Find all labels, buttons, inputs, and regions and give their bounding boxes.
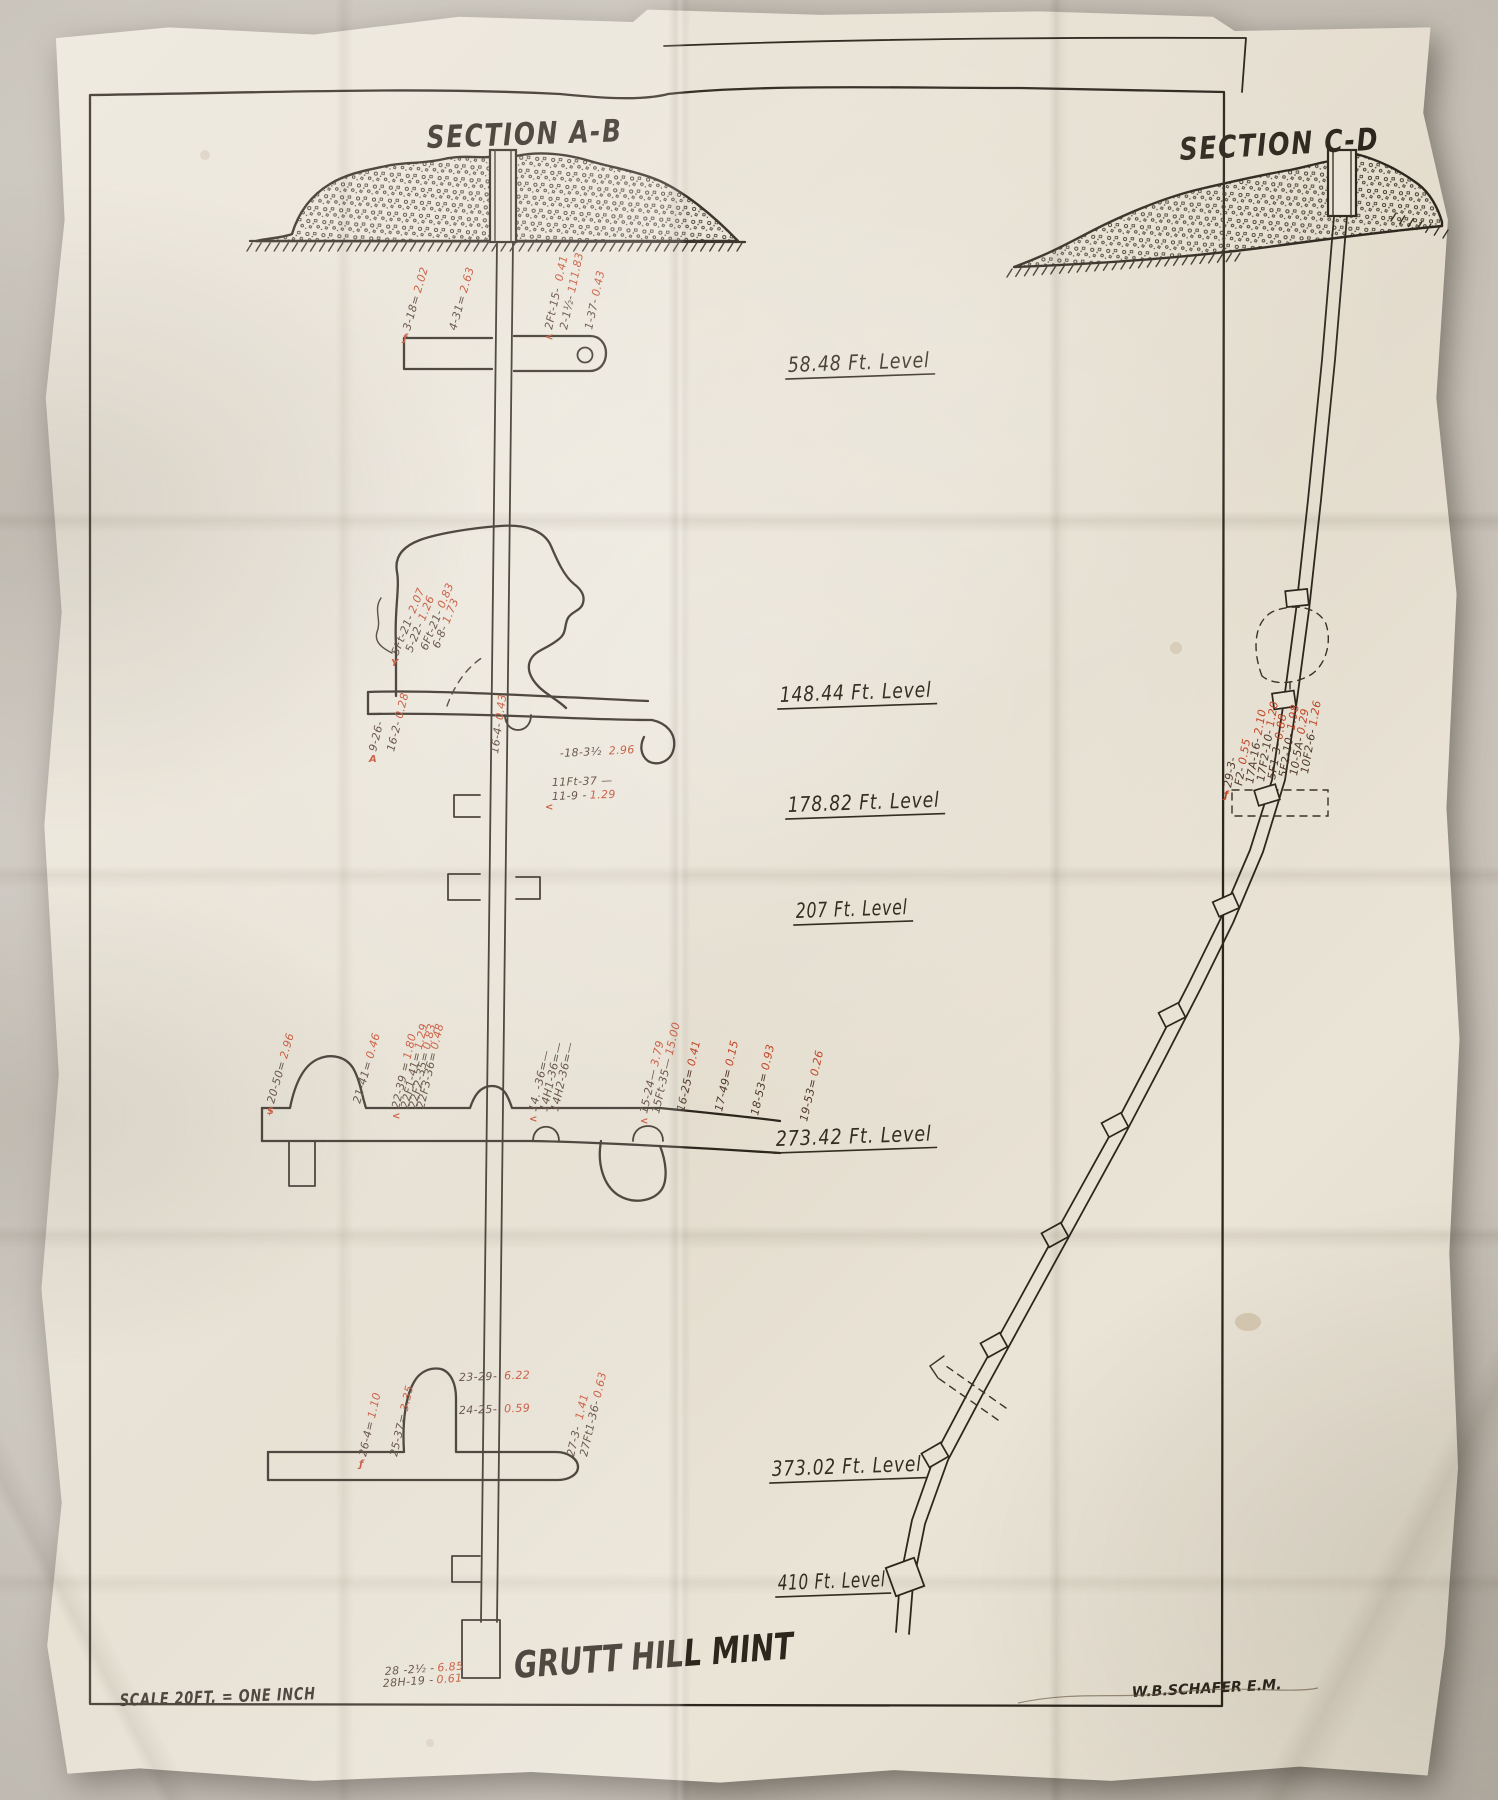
hatch-tick [728, 243, 733, 251]
hatch-tick [592, 243, 597, 251]
border-top-line [664, 38, 1246, 92]
hatch-tick [1235, 253, 1240, 261]
svg-text:-18-3½ 2.96: -18-3½ 2.96 [559, 743, 635, 760]
svg-text:20-50=2.96: 20-50=2.96 [264, 1031, 297, 1104]
border-rect [90, 87, 1224, 1706]
hatch-tick [374, 243, 379, 251]
hatch-tick [1033, 267, 1038, 275]
svg-text:3-18=2.02: 3-18=2.02 [400, 265, 430, 331]
hatch-tick [438, 243, 443, 251]
svg-text:273.42 Ft. Level: 273.42 Ft. Level [775, 1122, 932, 1151]
hatch-tick [556, 243, 561, 251]
assay-annotation: 16-2-0.28 [384, 691, 411, 752]
hatch-tick [474, 243, 479, 251]
assay-annotation: 19-53=0.26 [797, 1049, 826, 1123]
hatch-tick [1051, 266, 1056, 274]
hatch-tick [501, 243, 506, 251]
assay-annotation: 11Ft-37 — [552, 774, 613, 789]
hatch-tick [1007, 269, 1012, 277]
svg-text:17-49=0.15: 17-49=0.15 [712, 1039, 741, 1113]
stope-below-273 [600, 1141, 666, 1201]
winze-273-a [533, 1127, 559, 1141]
winze-58 [578, 348, 593, 363]
svg-text:26-4=1.10: 26-4=1.10 [356, 1391, 383, 1458]
hatch-tick [456, 243, 461, 251]
hatch-tick [646, 243, 651, 251]
drift-373-top [268, 1369, 578, 1480]
svg-text:24-25- 0.59: 24-25- 0.59 [459, 1402, 531, 1417]
drift-273-bottom [262, 1141, 780, 1153]
hatch-tick [401, 243, 406, 251]
svg-text:19-53=0.26: 19-53=0.26 [797, 1049, 826, 1123]
hatch-tick [392, 243, 397, 251]
hatch-tick [365, 243, 370, 251]
shaft-collar-ab [490, 150, 516, 242]
svg-text:207 Ft. Level: 207 Ft. Level [795, 895, 908, 923]
stain-spot [1235, 1313, 1261, 1331]
assay-annotation: 4-31=2.63 [446, 265, 476, 331]
assay-annotation: -18-3½ 2.96 [559, 743, 635, 760]
hatch-tick [565, 243, 570, 251]
hatch-tick [583, 243, 588, 251]
assay-mark: < [545, 802, 553, 813]
hatch-tick [1217, 254, 1222, 262]
incline-station-tab [981, 1333, 1008, 1358]
hatch-tick [683, 243, 688, 251]
stain-spot [200, 150, 210, 160]
hill-profile-cd [1014, 154, 1442, 267]
incline-station-tab [1213, 893, 1240, 917]
hatch-tick [1025, 268, 1030, 276]
hatch-tick [428, 243, 433, 251]
svg-text:4-31=2.63: 4-31=2.63 [446, 265, 476, 331]
assay-annotation: 3-18=2.02ƒ [400, 265, 430, 344]
hatch-tick [1060, 265, 1065, 273]
hatch-tick [465, 243, 470, 251]
hatch-tick [574, 243, 579, 251]
hatch-tick [1042, 267, 1047, 275]
hatch-tick [247, 243, 252, 251]
hatch-tick [710, 243, 715, 251]
assay-annotation: 11-9 -1.29< [545, 788, 616, 813]
mine-section-drawing: 58.48 Ft. Level148.44 Ft. Level178.82 Ft… [0, 0, 1498, 1800]
assay-annotation: 1-37-0.43 [582, 269, 607, 330]
hatch-tick [1226, 254, 1231, 262]
svg-text:23-29- 6.22: 23-29- 6.22 [459, 1369, 531, 1384]
crosscut-207-left [448, 874, 480, 900]
hatch-tick [537, 243, 542, 251]
stain-spot [1170, 642, 1182, 654]
assay-mark: < [545, 332, 553, 343]
hatch-tick [1182, 257, 1187, 265]
hatch-tick [410, 243, 415, 251]
hatch-tick [292, 243, 297, 251]
hatch-tick [256, 243, 261, 251]
shaft-bottom-box [462, 1620, 500, 1678]
hatch-tick [356, 243, 361, 251]
assay-mark: < [392, 1111, 400, 1122]
hatch-tick [347, 243, 352, 251]
hatch-tick [320, 243, 325, 251]
level-labels: 58.48 Ft. Level148.44 Ft. Level178.82 Ft… [768, 348, 945, 1597]
svg-text:16-25=0.41: 16-25=0.41 [674, 1039, 703, 1113]
assay-mark: ƒ [357, 1459, 365, 1470]
incline-shaft-line1 [896, 216, 1334, 1632]
assay-mark: < [529, 1114, 537, 1125]
stope-148-squiggle [376, 598, 392, 653]
incline-station-tab [1254, 784, 1280, 806]
hatch-tick [1209, 255, 1214, 263]
hatch-tick [483, 243, 488, 251]
winze-273-b [633, 1126, 663, 1141]
mine-name: GRUTT HILL MINT [513, 1624, 797, 1687]
assay-annotation: 24-25- 0.59 [459, 1402, 531, 1417]
incline-station-tab [1285, 589, 1309, 607]
hatch-tick [673, 243, 678, 251]
hatch-tick [329, 243, 334, 251]
assay-annotation: 16-25=0.41 [674, 1039, 703, 1113]
assay-mark: $ [267, 1106, 274, 1117]
sheet-border [90, 38, 1246, 1706]
hatch-tick [692, 243, 697, 251]
hatch-tick [1200, 255, 1205, 263]
hatch-tick [383, 243, 388, 251]
stub-below-373 [452, 1556, 480, 1582]
hatch-tick [655, 243, 660, 251]
level-label: 273.42 Ft. Level [772, 1121, 937, 1153]
assay-mark: ƒ [1222, 790, 1230, 801]
scale-note: SCALE 20FT. = ONE INCH [119, 1684, 316, 1711]
hatch-tick [447, 243, 452, 251]
stope-148-dashed-arc [447, 657, 483, 706]
hatch-tick [719, 243, 724, 251]
drift-273-top [262, 1056, 780, 1121]
level-label: 178.82 Ft. Level [784, 788, 945, 820]
hatch-tick [528, 243, 533, 251]
hatch-tick [546, 243, 551, 251]
assay-mark: < [640, 1116, 648, 1127]
hatch-tick [628, 243, 633, 251]
assay-annotation: 21-41=0.46 [350, 1031, 383, 1104]
hatch-tick [619, 243, 624, 251]
section-cd-group [886, 150, 1442, 1634]
svg-text:11-9 -1.29: 11-9 -1.29 [552, 788, 616, 803]
incline-station-tabs [921, 589, 1308, 1468]
level-label: 410 Ft. Level [774, 1567, 891, 1597]
svg-text:373.02 Ft. Level: 373.02 Ft. Level [771, 1452, 922, 1481]
drift-148-hook [641, 720, 674, 763]
hatch-tick [1174, 257, 1179, 265]
assay-mark: A [368, 754, 377, 765]
svg-text:11Ft-37 —: 11Ft-37 — [552, 774, 613, 789]
section-ab-group [250, 150, 780, 1678]
svg-text:16-2-0.28: 16-2-0.28 [384, 691, 411, 752]
drift-58-left [404, 338, 492, 369]
section-ab-title: SECTION A-B [426, 113, 623, 156]
hatch-tick [274, 243, 279, 251]
assay-annotation: 17-49=0.15 [712, 1039, 741, 1113]
stub-273-left [289, 1141, 315, 1186]
hatch-tick [1434, 227, 1439, 235]
hatch-tick [701, 243, 706, 251]
hatch-tick [737, 243, 742, 251]
svg-text:9-26-: 9-26- [366, 720, 386, 753]
svg-text:410 Ft. Level: 410 Ft. Level [777, 1567, 886, 1595]
svg-text:21-41=0.46: 21-41=0.46 [350, 1031, 383, 1104]
level-label: 207 Ft. Level [792, 895, 913, 925]
hatch-tick [601, 243, 606, 251]
svg-text:148.44 Ft. Level: 148.44 Ft. Level [779, 678, 932, 707]
assay-annotation: 20-50=2.96$ [264, 1031, 297, 1117]
stub-178-left [454, 795, 480, 817]
assay-mark: Y [391, 658, 400, 669]
hatch-tick [419, 243, 424, 251]
hatch-tick [1443, 230, 1448, 238]
level-label: 148.44 Ft. Level [776, 678, 937, 710]
svg-text:25-37=3.35: 25-37=3.35 [387, 1384, 416, 1458]
hatch-tick [519, 243, 524, 251]
hatch-tick [301, 243, 306, 251]
svg-text:58.48 Ft. Level: 58.48 Ft. Level [787, 348, 930, 377]
assay-annotation: 25-37=3.35 [387, 1384, 416, 1458]
hatch-tick [1016, 268, 1021, 276]
assay-annotation: 18-53=0.93 [748, 1043, 777, 1117]
level-label: 58.48 Ft. Level [784, 348, 935, 379]
svg-text:18-53=0.93: 18-53=0.93 [748, 1043, 777, 1117]
hatch-tick [1068, 265, 1073, 273]
stain-spot [426, 1739, 434, 1747]
assay-annotation: 9-26-A [366, 720, 386, 765]
hatch-tick [637, 243, 642, 251]
assay-annotation: 23-29- 6.22 [459, 1369, 531, 1384]
incline-shaft-line2 [909, 216, 1347, 1634]
incline-bottom-box [886, 1558, 924, 1596]
hatch-tick [1191, 256, 1196, 264]
assay-annotation: 26-4=1.10ƒ [356, 1391, 383, 1470]
hatch-tick [610, 243, 615, 251]
incline-station-tab [921, 1443, 948, 1468]
paper-stains [200, 150, 1261, 1747]
spur-cd-dashed [938, 1366, 1006, 1420]
incline-station-tab [1159, 1003, 1186, 1027]
hatch-tick [311, 243, 316, 251]
hatch-tick [265, 243, 270, 251]
hatch-tick [283, 243, 288, 251]
drift-148-bottom [368, 714, 652, 720]
hatch-tick [664, 243, 669, 251]
hatch-tick [338, 243, 343, 251]
crosscut-207-right [516, 877, 540, 899]
level-label: 373.02 Ft. Level [768, 1452, 927, 1483]
svg-text:1-37-0.43: 1-37-0.43 [582, 269, 607, 330]
spur-cd-end [930, 1356, 944, 1378]
svg-text:178.82 Ft. Level: 178.82 Ft. Level [787, 788, 940, 817]
